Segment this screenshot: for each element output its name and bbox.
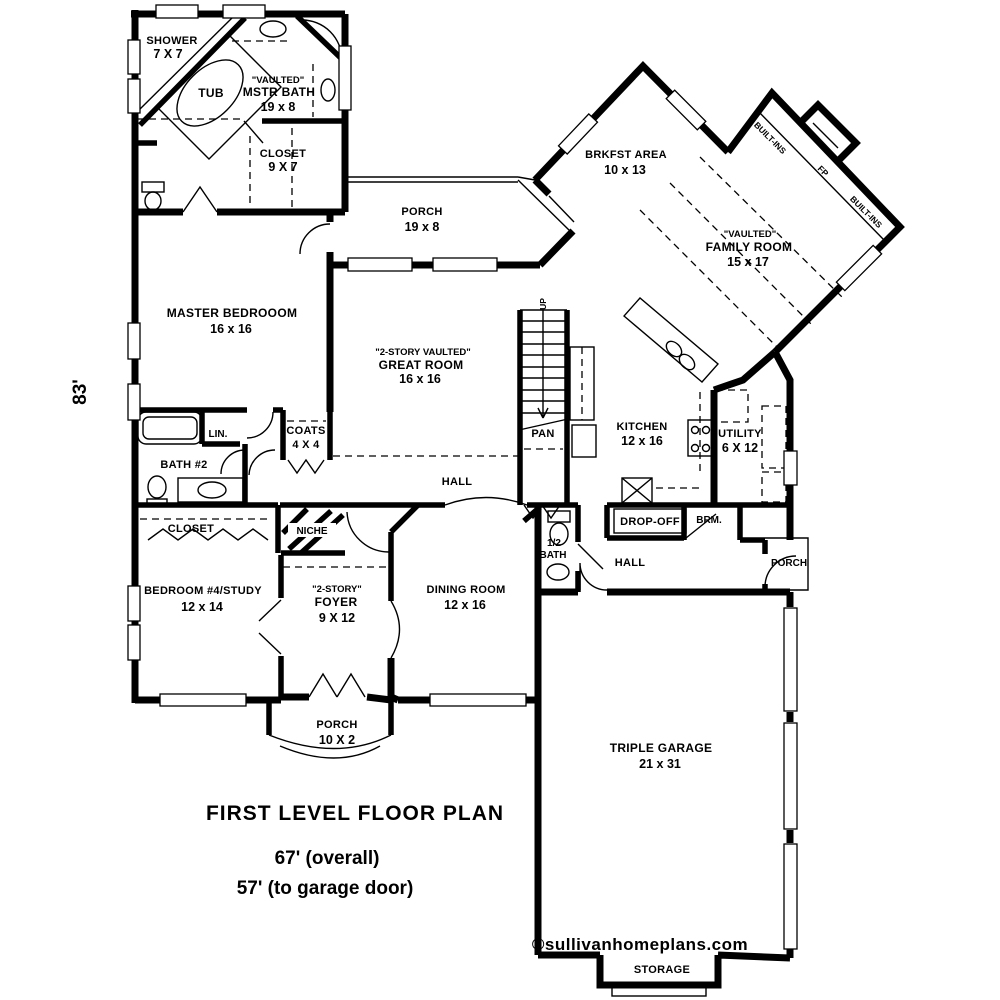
garage-door-panel xyxy=(784,723,797,829)
corner-shower-wall xyxy=(297,16,345,62)
label-tub: TUB xyxy=(198,86,224,100)
burner xyxy=(692,445,699,452)
label-dropoff: DROP-OFF xyxy=(620,516,680,528)
bedroom-hall-doors xyxy=(247,412,275,475)
label-utility-dims: 6 X 12 xyxy=(722,441,758,455)
bath2-door xyxy=(221,450,245,474)
label-niche: NICHE xyxy=(296,526,327,537)
label-kitchen: KITCHEN xyxy=(617,421,668,433)
vanity-sink-1 xyxy=(260,21,286,37)
coats-doors xyxy=(288,460,324,473)
label-fp: FP xyxy=(816,163,831,178)
watermark: ©sullivanhomeplans.com xyxy=(532,935,748,954)
floor-plan-page: SHOWER 7 X 7 TUB "VAULTED" MSTR BATH 19 … xyxy=(0,0,1000,1000)
label-foyer: FOYER xyxy=(315,595,358,609)
label-great: GREAT ROOM xyxy=(379,358,464,372)
garage-door-panel xyxy=(784,608,797,711)
label-porch-top-dims: 19 x 8 xyxy=(405,220,440,234)
garage-door-entry xyxy=(580,563,607,590)
label-porch-front-dims: 10 X 2 xyxy=(319,733,355,747)
foyer-opening xyxy=(347,512,389,552)
label-bedroom4-dims: 12 x 14 xyxy=(181,600,223,614)
front-doors xyxy=(309,674,365,697)
label-dining-dims: 12 x 16 xyxy=(444,598,486,612)
label-pan: PAN xyxy=(531,428,554,440)
stair-arrow xyxy=(538,310,548,418)
label-garage: TRIPLE GARAGE xyxy=(610,741,713,755)
dining-arch xyxy=(445,498,527,506)
label-mstr-closet-dims: 9 X 7 xyxy=(268,160,297,174)
bath2-toilet xyxy=(148,476,166,498)
label-storage: STORAGE xyxy=(634,964,690,976)
burner xyxy=(703,427,710,434)
label-coats: COATS xyxy=(286,425,325,437)
master-toilet xyxy=(145,192,161,210)
label-hall: HALL xyxy=(442,476,473,488)
mstr-bath-doors xyxy=(183,187,217,212)
label-coats-dims: 4 X 4 xyxy=(292,439,320,451)
label-shower: SHOWER xyxy=(146,35,197,47)
label-mstr-closet: CLOSET xyxy=(260,148,306,160)
label-dining: DINING ROOM xyxy=(426,584,505,596)
label-builtins-a: BUILT-INS xyxy=(752,120,788,156)
fixtures xyxy=(138,21,710,580)
label-lin: LIN. xyxy=(209,429,228,440)
label-closet-b4: CLOSET xyxy=(168,523,214,535)
label-foyer-dims: 9 X 12 xyxy=(319,611,355,625)
half-bath-door xyxy=(578,544,603,569)
label-family-dims: 15 x 17 xyxy=(727,255,769,269)
label-builtins-b: BUILT-INS xyxy=(848,194,884,230)
label-brkfst: BRKFST AREA xyxy=(585,149,667,161)
foyer-bay xyxy=(391,601,400,658)
label-bath2: BATH #2 xyxy=(160,459,207,471)
label-brkfst-dims: 10 x 13 xyxy=(604,163,646,177)
label-master-dims: 16 x 16 xyxy=(210,322,252,336)
kitchen-sink-2 xyxy=(676,351,697,372)
overall-dimension: 67' (overall) xyxy=(275,848,380,869)
label-half-bath-1: 1/2 xyxy=(547,538,561,549)
vanity-sink-2 xyxy=(321,79,335,101)
label-bedroom4: BEDROOM #4/STUDY xyxy=(144,585,262,597)
plan-title: FIRST LEVEL FLOOR PLAN xyxy=(206,802,504,825)
porch-door-west xyxy=(300,224,330,254)
label-master: MASTER BEDROOOM xyxy=(167,306,298,320)
utility-door xyxy=(784,451,797,485)
label-utility: UTILITY xyxy=(718,428,762,440)
label-hall-rear: HALL xyxy=(615,557,646,569)
label-porch-rear: PORCH xyxy=(771,558,807,569)
label-great-tag: "2-STORY VAULTED" xyxy=(375,347,471,358)
label-mstr-bath: MSTR BATH xyxy=(243,85,315,99)
height-dimension: 83' xyxy=(70,379,91,405)
garage-dimension: 57' (to garage door) xyxy=(237,878,414,899)
porch-door-east xyxy=(549,196,574,222)
label-family: FAMILY ROOM xyxy=(706,240,793,254)
bedroom4-doors xyxy=(259,600,281,654)
label-garage-dims: 21 x 31 xyxy=(639,757,681,771)
label-kitchen-dims: 12 x 16 xyxy=(621,434,663,448)
label-foyer-tag: "2-STORY" xyxy=(312,584,362,595)
label-mstr-bath-dims: 19 x 8 xyxy=(261,100,296,114)
burner xyxy=(692,427,699,434)
label-brm: BRM. xyxy=(696,515,722,526)
burner xyxy=(703,445,710,452)
label-family-tag: "VAULTED" xyxy=(724,229,776,240)
label-porch-top: PORCH xyxy=(401,206,442,218)
label-up: UP xyxy=(538,298,548,310)
master-toilet-tank xyxy=(142,182,164,192)
kitchen-counter xyxy=(624,298,718,382)
half-bath-sink xyxy=(547,564,569,580)
label-shower-dims: 7 X 7 xyxy=(153,47,182,61)
kitchen-sink-1 xyxy=(663,338,684,359)
label-porch-front: PORCH xyxy=(316,719,357,731)
label-great-dims: 16 x 16 xyxy=(399,372,441,386)
garage-door-panel xyxy=(784,844,797,949)
floor-plan-drawing: SHOWER 7 X 7 TUB "VAULTED" MSTR BATH 19 … xyxy=(0,0,1000,1000)
label-half-bath-2: BATH xyxy=(539,550,566,561)
